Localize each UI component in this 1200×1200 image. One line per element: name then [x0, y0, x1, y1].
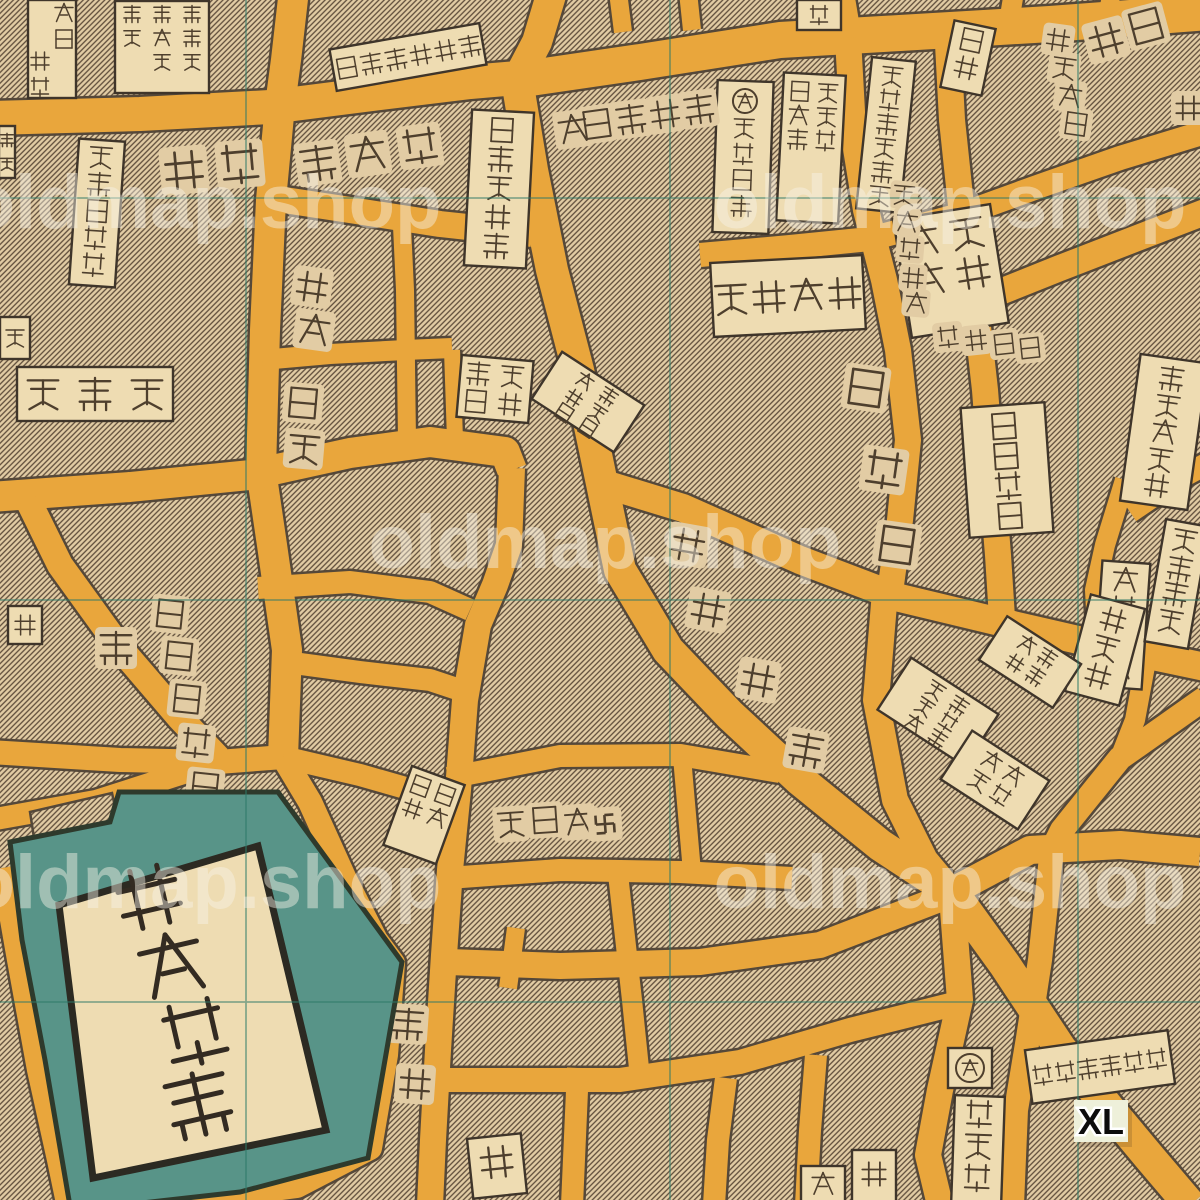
svg-text:oldmap.shop: oldmap.shop [714, 160, 1187, 245]
svg-text:oldmap.shop: oldmap.shop [714, 840, 1187, 925]
svg-text:oldmap.shop: oldmap.shop [0, 840, 441, 925]
svg-text:XL: XL [1078, 1101, 1124, 1142]
svg-text:oldmap.shop: oldmap.shop [369, 500, 842, 585]
svg-text:oldmap.shop: oldmap.shop [0, 160, 441, 245]
